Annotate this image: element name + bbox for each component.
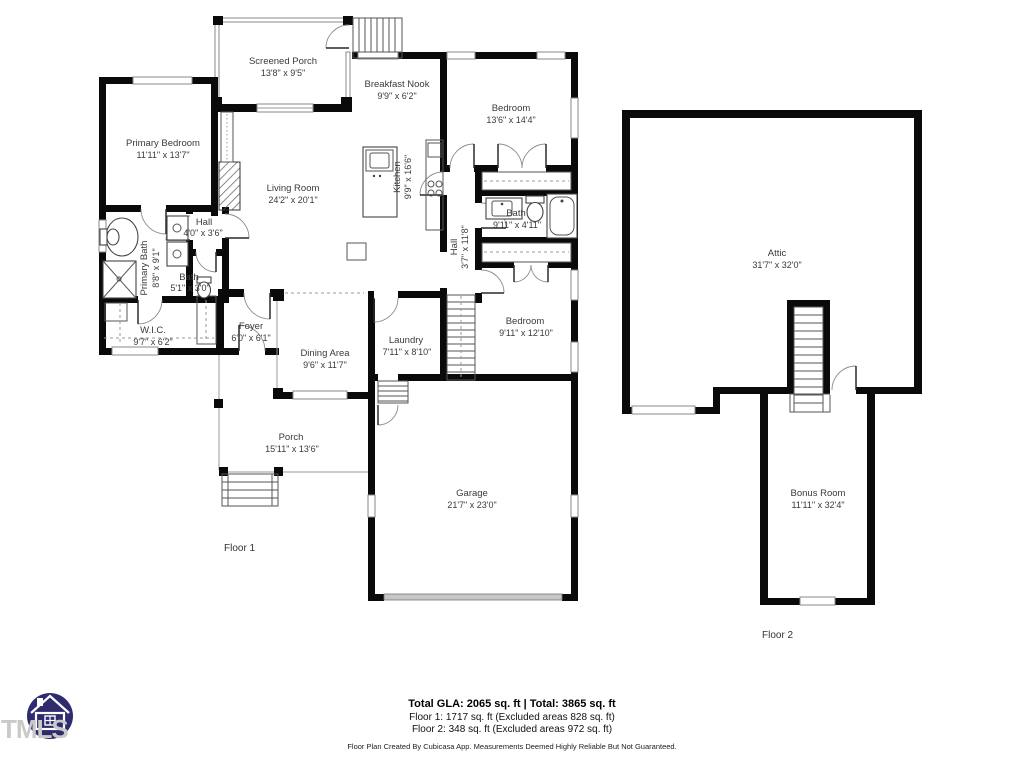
room-label-wic-name: W.I.C.	[140, 325, 166, 336]
floor2-area-text: Floor 2: 348 sq. ft (Excluded areas 972 …	[412, 724, 612, 735]
room-label-primary-bedroom-dims: 11'11" x 13'7"	[136, 150, 189, 160]
floor1-fixtures	[100, 140, 577, 298]
room-label-kitchen-name: Kitchen	[392, 161, 403, 193]
room-label-bedroom-lower-name: Bedroom	[506, 316, 545, 327]
floor-plan-image: Screened Porch 13'8" x 9'5" Primary Bedr…	[0, 0, 1024, 768]
floor1-labels: Screened Porch 13'8" x 9'5" Primary Bedr…	[126, 56, 553, 554]
porch-structure	[214, 301, 368, 506]
garage-steps	[378, 381, 408, 403]
room-label-garage-name: Garage	[456, 488, 488, 499]
interior-stairs	[447, 295, 475, 380]
room-label-laundry-dims: 7'11" x 8'10"	[383, 347, 432, 357]
tmls-logo: TMLS	[1, 693, 73, 744]
room-label-screened-porch-dims: 13'8" x 9'5"	[261, 68, 305, 78]
room-label-bedroom-lower-dims: 9'11" x 12'10"	[499, 328, 553, 338]
room-label-porch-dims: 15'11" x 13'6"	[265, 444, 319, 454]
room-label-foyer-dims: 6'0" x 6'1"	[231, 333, 270, 343]
room-label-dining-area-name: Dining Area	[300, 348, 350, 359]
floor2-plan: Attic 31'7" x 32'0" Bonus Room 11'11" x …	[622, 110, 922, 641]
room-label-screened-porch-name: Screened Porch	[249, 56, 317, 67]
room-label-bath-small-dims: 5'1" x 3'0"	[170, 283, 209, 293]
room-label-garage-dims: 21'7" x 23'0"	[447, 500, 496, 510]
floor2-doors	[830, 366, 856, 395]
disclaimer-text: Floor Plan Created By Cubicasa App. Meas…	[347, 742, 676, 751]
floor1-plan: Screened Porch 13'8" x 9'5" Primary Bedr…	[99, 16, 578, 602]
footer-text: Total GLA: 2065 sq. ft | Total: 3865 sq.…	[347, 698, 676, 751]
room-label-hall-small-dims: 4'0" x 3'6"	[183, 228, 222, 238]
room-label-attic-name: Attic	[768, 248, 787, 259]
floor2-label: Floor 2	[762, 630, 794, 641]
room-label-primary-bath-dims: 8'8" x 9'1"	[151, 248, 161, 287]
room-label-breakfast-nook-name: Breakfast Nook	[365, 79, 430, 90]
garage-door	[384, 593, 562, 602]
room-label-breakfast-nook-dims: 9'9" x 6'2"	[377, 91, 416, 101]
room-label-foyer-name: Foyer	[239, 321, 263, 332]
room-label-bath-name: Bath	[506, 208, 526, 219]
room-label-bath-dims: 9'11" x 4'11"	[493, 220, 541, 230]
room-label-primary-bedroom-name: Primary Bedroom	[126, 138, 200, 149]
room-label-bath-small-name: Bath	[179, 272, 199, 283]
room-label-kitchen-dims: 9'9" x 16'6"	[403, 155, 413, 199]
room-label-bedroom-upper-name: Bedroom	[492, 103, 531, 114]
room-label-hall-small-name: Hall	[196, 217, 212, 228]
floor1-area-text: Floor 1: 1717 sq. ft (Excluded areas 828…	[409, 712, 615, 723]
room-label-living-room-dims: 24'2" x 20'1"	[268, 195, 317, 205]
room-label-bonus-room-name: Bonus Room	[791, 488, 846, 499]
floor2-walls	[622, 110, 922, 605]
room-label-attic-dims: 31'7" x 32'0"	[752, 260, 801, 270]
room-label-wic-dims: 9'7" x 6'2"	[133, 337, 172, 347]
room-label-laundry-name: Laundry	[389, 335, 424, 346]
floor1-label: Floor 1	[224, 543, 256, 554]
room-label-primary-bath-name: Primary Bath	[139, 241, 150, 296]
room-label-bonus-room-dims: 11'11" x 32'4"	[791, 500, 844, 510]
room-label-hall-dims: 3'7" x 11'8"	[460, 225, 470, 269]
logo-text: TMLS	[1, 714, 68, 744]
room-label-bedroom-upper-dims: 13'6" x 14'4"	[486, 115, 535, 125]
room-label-dining-area-dims: 9'6" x 11'7"	[303, 360, 347, 370]
room-label-hall-name: Hall	[449, 239, 460, 255]
room-label-porch-name: Porch	[279, 432, 304, 443]
floor-plan-page: Screened Porch 13'8" x 9'5" Primary Bedr…	[0, 0, 1024, 768]
total-gla-text: Total GLA: 2065 sq. ft | Total: 3865 sq.…	[408, 698, 616, 710]
deck-stairs	[353, 18, 402, 58]
room-label-living-room-name: Living Room	[267, 183, 320, 194]
